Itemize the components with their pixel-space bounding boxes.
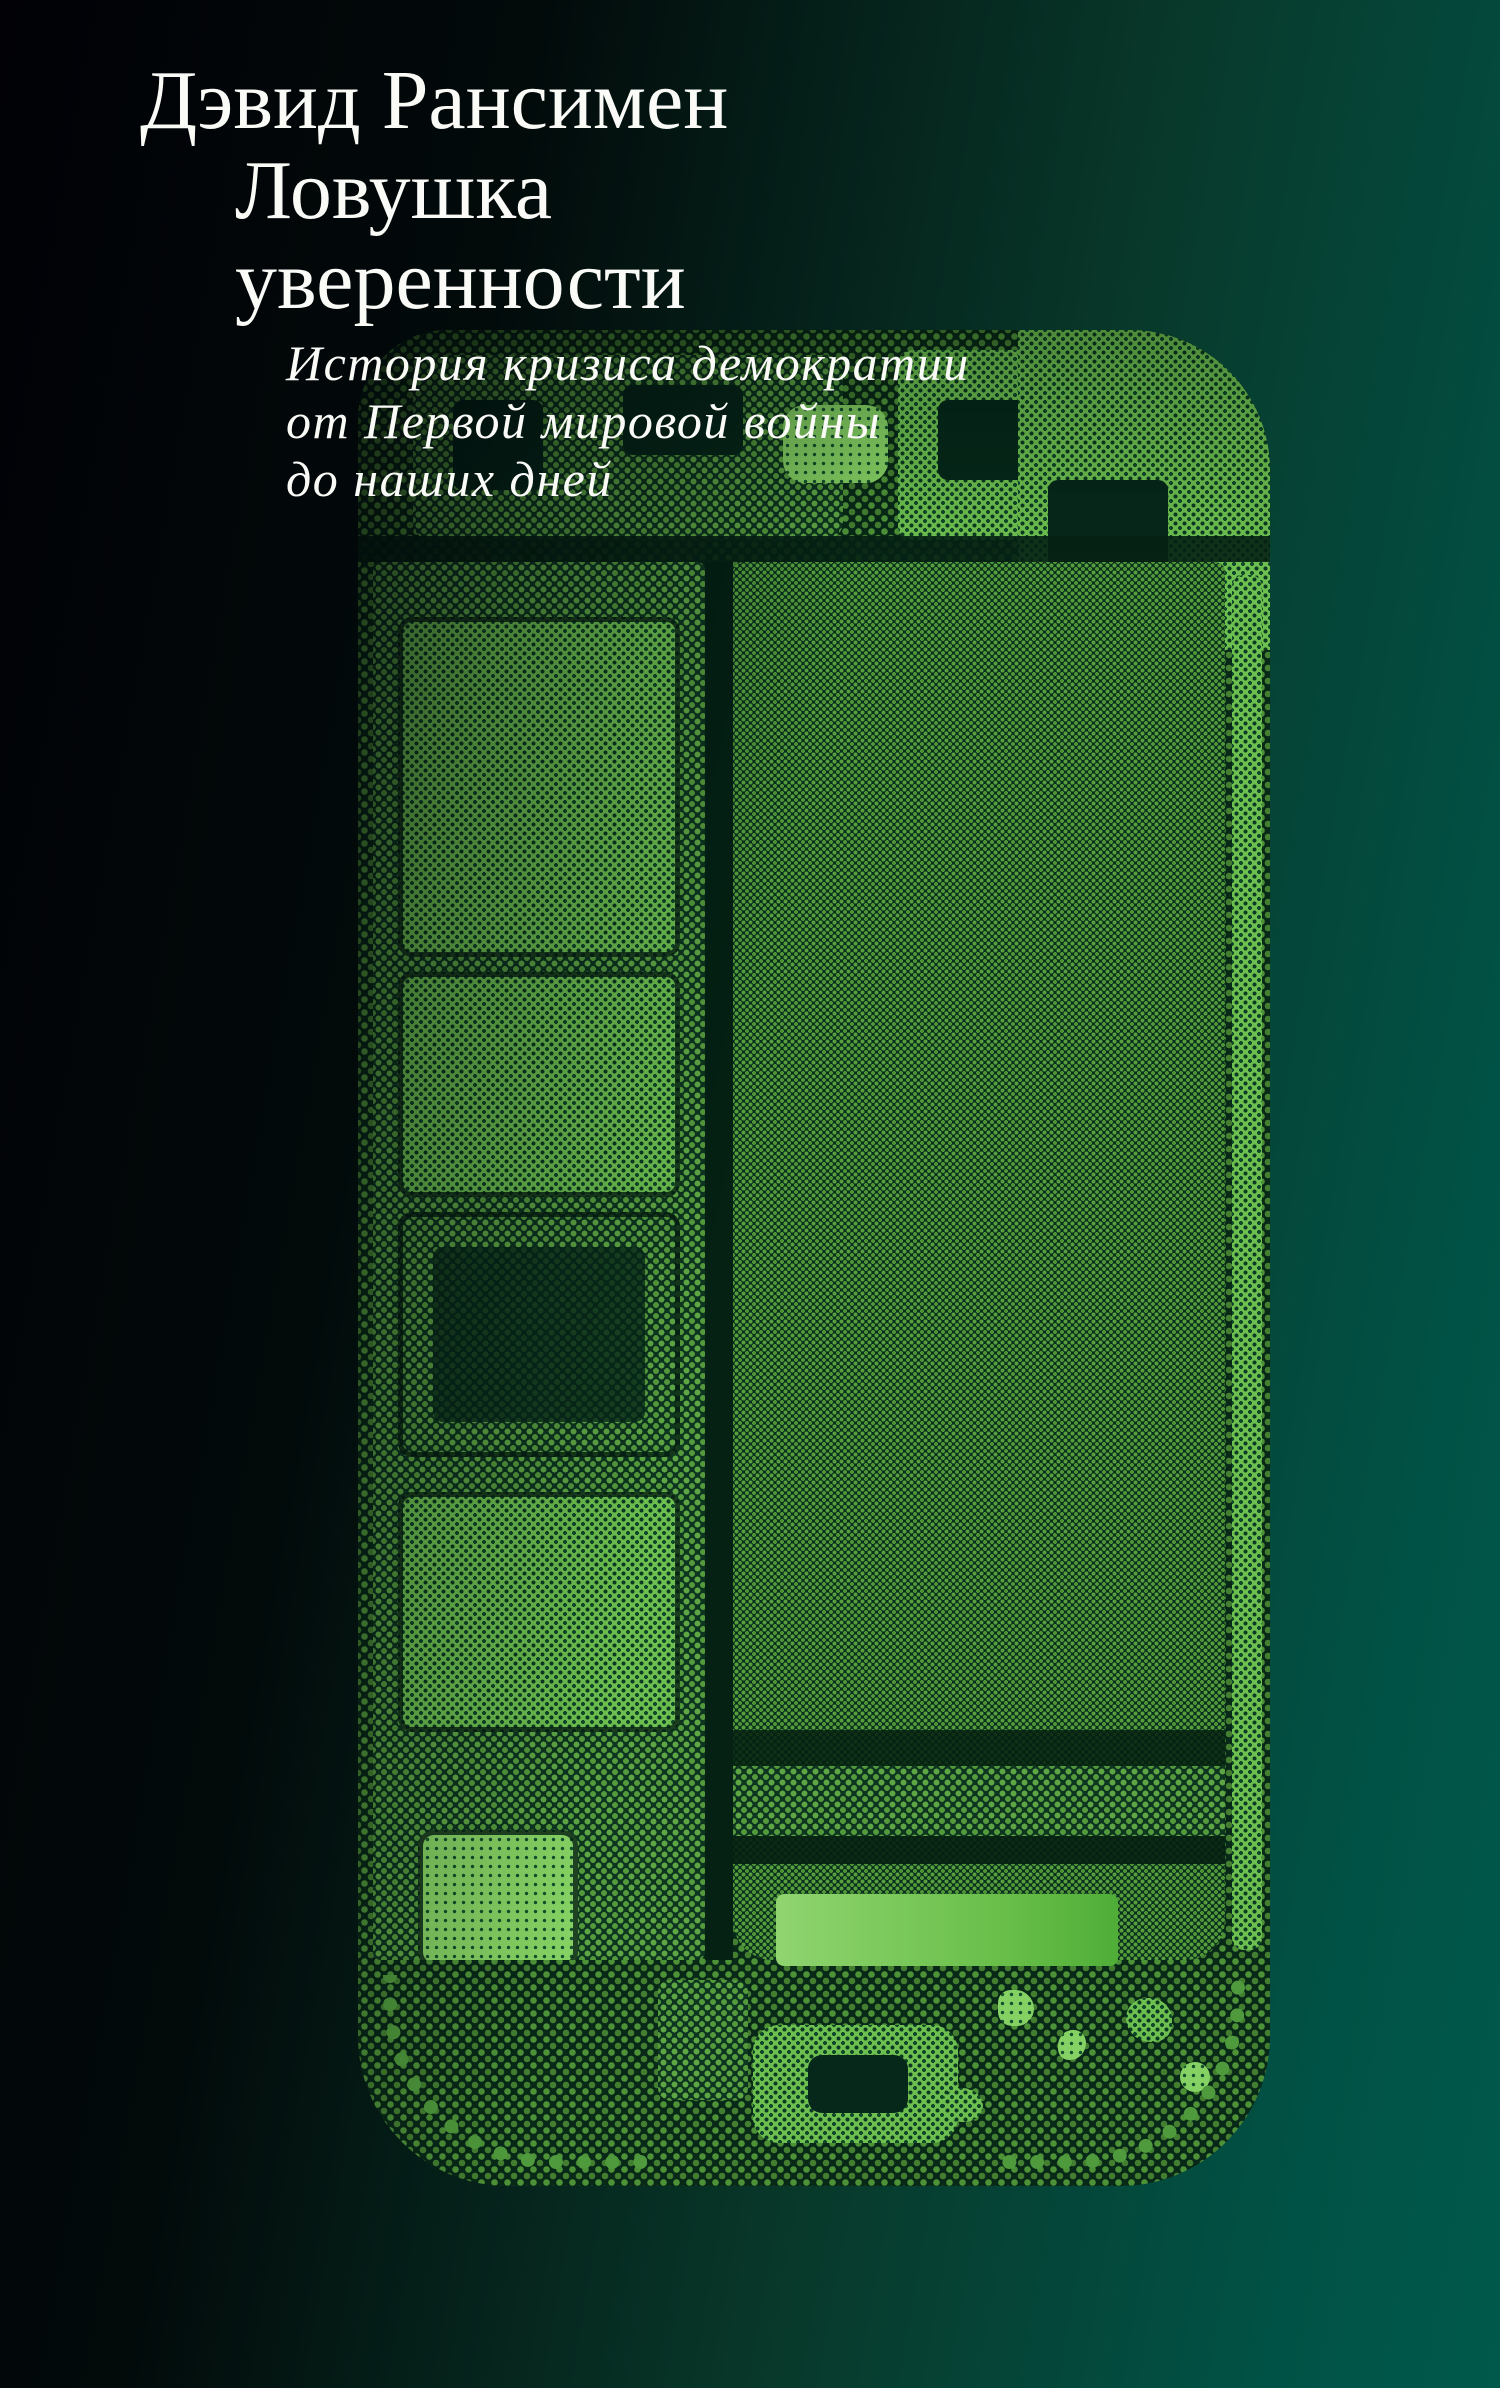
title-block: Дэвид Рансимен Ловушка уверенности xyxy=(140,56,728,326)
subtitle-line-1: История кризиса демократии xyxy=(286,334,970,392)
title-line-2: уверенности xyxy=(235,236,728,326)
subtitle-line-3: до наших дней xyxy=(286,450,970,508)
subtitle-block: История кризиса демократии от Первой мир… xyxy=(286,334,970,508)
phone-internals-artwork xyxy=(358,330,1270,2186)
author-name: Дэвид Рансимен xyxy=(140,56,728,146)
artwork-shading-overlay xyxy=(358,330,1270,2186)
title-line-1: Ловушка xyxy=(235,146,728,236)
subtitle-line-2: от Первой мировой войны xyxy=(286,392,970,450)
book-cover: { "cover": { "author": "Дэвид Рансимен",… xyxy=(0,0,1500,2388)
